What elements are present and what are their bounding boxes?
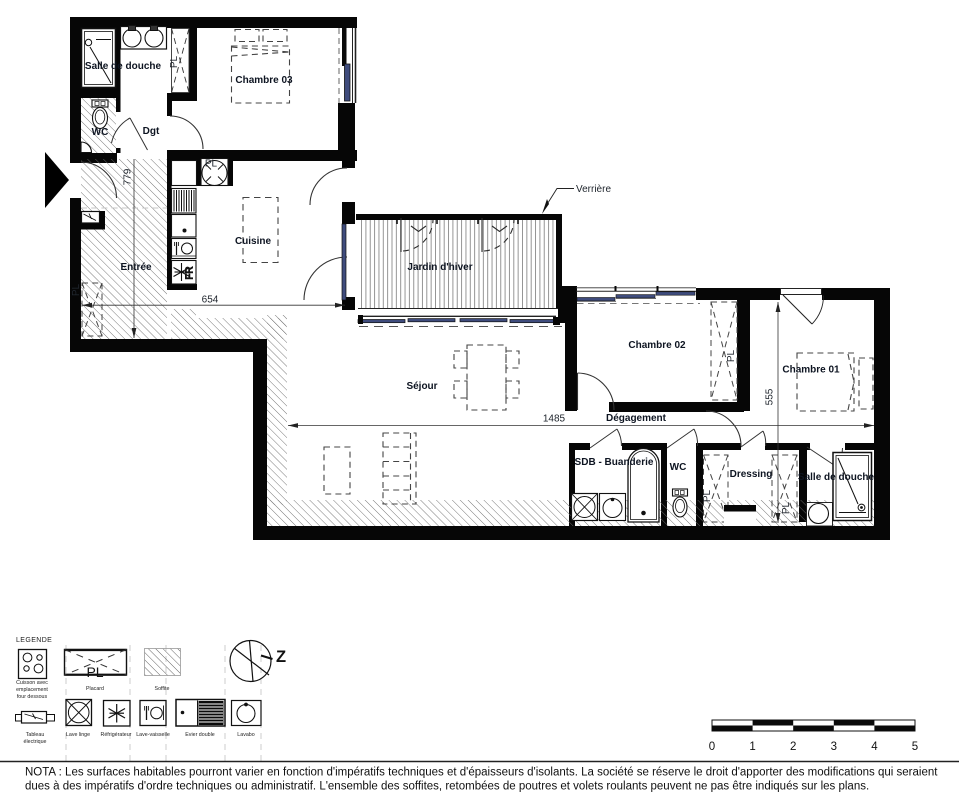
svg-text:Réfrigérateur: Réfrigérateur xyxy=(101,732,132,738)
svg-text:PL: PL xyxy=(71,283,82,296)
svg-text:PL: PL xyxy=(781,501,792,514)
svg-text:PL: PL xyxy=(169,55,180,68)
svg-text:Dressing: Dressing xyxy=(730,469,773,480)
svg-text:4: 4 xyxy=(871,741,878,753)
svg-text:Cuisson avec: Cuisson avec xyxy=(16,680,48,686)
svg-text:emplacement: emplacement xyxy=(16,687,48,693)
svg-text:Lave linge: Lave linge xyxy=(66,732,90,738)
svg-text:PL: PL xyxy=(702,489,713,502)
svg-text:779: 779 xyxy=(123,168,134,185)
svg-text:2: 2 xyxy=(790,741,796,753)
svg-text:PL: PL xyxy=(726,349,737,362)
svg-text:555: 555 xyxy=(765,388,776,405)
svg-text:four dessous: four dessous xyxy=(17,694,48,700)
svg-text:Z: Z xyxy=(276,648,286,666)
svg-text:Dégagement: Dégagement xyxy=(606,413,667,424)
svg-text:Soffite: Soffite xyxy=(155,686,170,692)
svg-text:1: 1 xyxy=(749,741,755,753)
svg-text:PL: PL xyxy=(205,159,218,170)
svg-text:Verrière: Verrière xyxy=(576,184,611,195)
svg-text:WC: WC xyxy=(92,127,109,138)
svg-text:dues à des impératifs d'ordre: dues à des impératifs d'ordre techniques… xyxy=(25,781,869,793)
svg-text:PL: PL xyxy=(86,664,103,680)
svg-text:Chambre 01: Chambre 01 xyxy=(782,365,840,376)
svg-text:Salle de douche: Salle de douche xyxy=(85,61,162,72)
svg-text:Dgt: Dgt xyxy=(143,126,160,137)
svg-text:654: 654 xyxy=(202,295,219,306)
svg-text:SDB - Buanderie: SDB - Buanderie xyxy=(575,457,654,468)
svg-text:1485: 1485 xyxy=(543,414,566,425)
svg-text:Salle de douche: Salle de douche xyxy=(798,472,875,483)
svg-text:LEGENDE: LEGENDE xyxy=(16,637,52,644)
svg-text:3: 3 xyxy=(831,741,837,753)
svg-text:0: 0 xyxy=(709,741,715,753)
svg-text:Jardin d'hiver: Jardin d'hiver xyxy=(407,262,472,273)
svg-text:FR: FR xyxy=(185,266,196,279)
svg-text:Evier double: Evier double xyxy=(185,732,214,738)
svg-text:Séjour: Séjour xyxy=(406,381,437,392)
svg-text:WC: WC xyxy=(670,462,687,473)
svg-text:Cuisine: Cuisine xyxy=(235,236,272,247)
svg-text:Placard: Placard xyxy=(86,686,104,692)
svg-text:Entrée: Entrée xyxy=(120,262,152,273)
svg-text:5: 5 xyxy=(912,741,918,753)
svg-text:Chambre 03: Chambre 03 xyxy=(235,75,293,86)
svg-text:Lave-vaisselle: Lave-vaisselle xyxy=(136,732,170,738)
svg-text:Tableau: Tableau xyxy=(26,732,45,738)
svg-text:électrique: électrique xyxy=(24,739,47,745)
svg-text:Chambre 02: Chambre 02 xyxy=(628,340,686,351)
svg-text:NOTA : Les surfaces habitables: NOTA : Les surfaces habitables pourront … xyxy=(25,767,938,779)
svg-text:Lavabo: Lavabo xyxy=(237,732,254,738)
